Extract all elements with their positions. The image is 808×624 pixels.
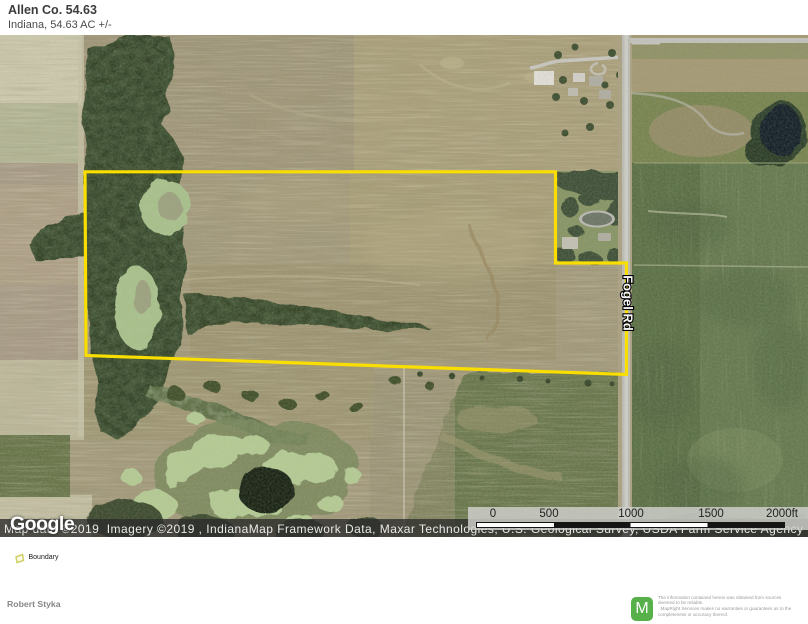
svg-text:Fogel Rd: Fogel Rd [621, 275, 636, 331]
